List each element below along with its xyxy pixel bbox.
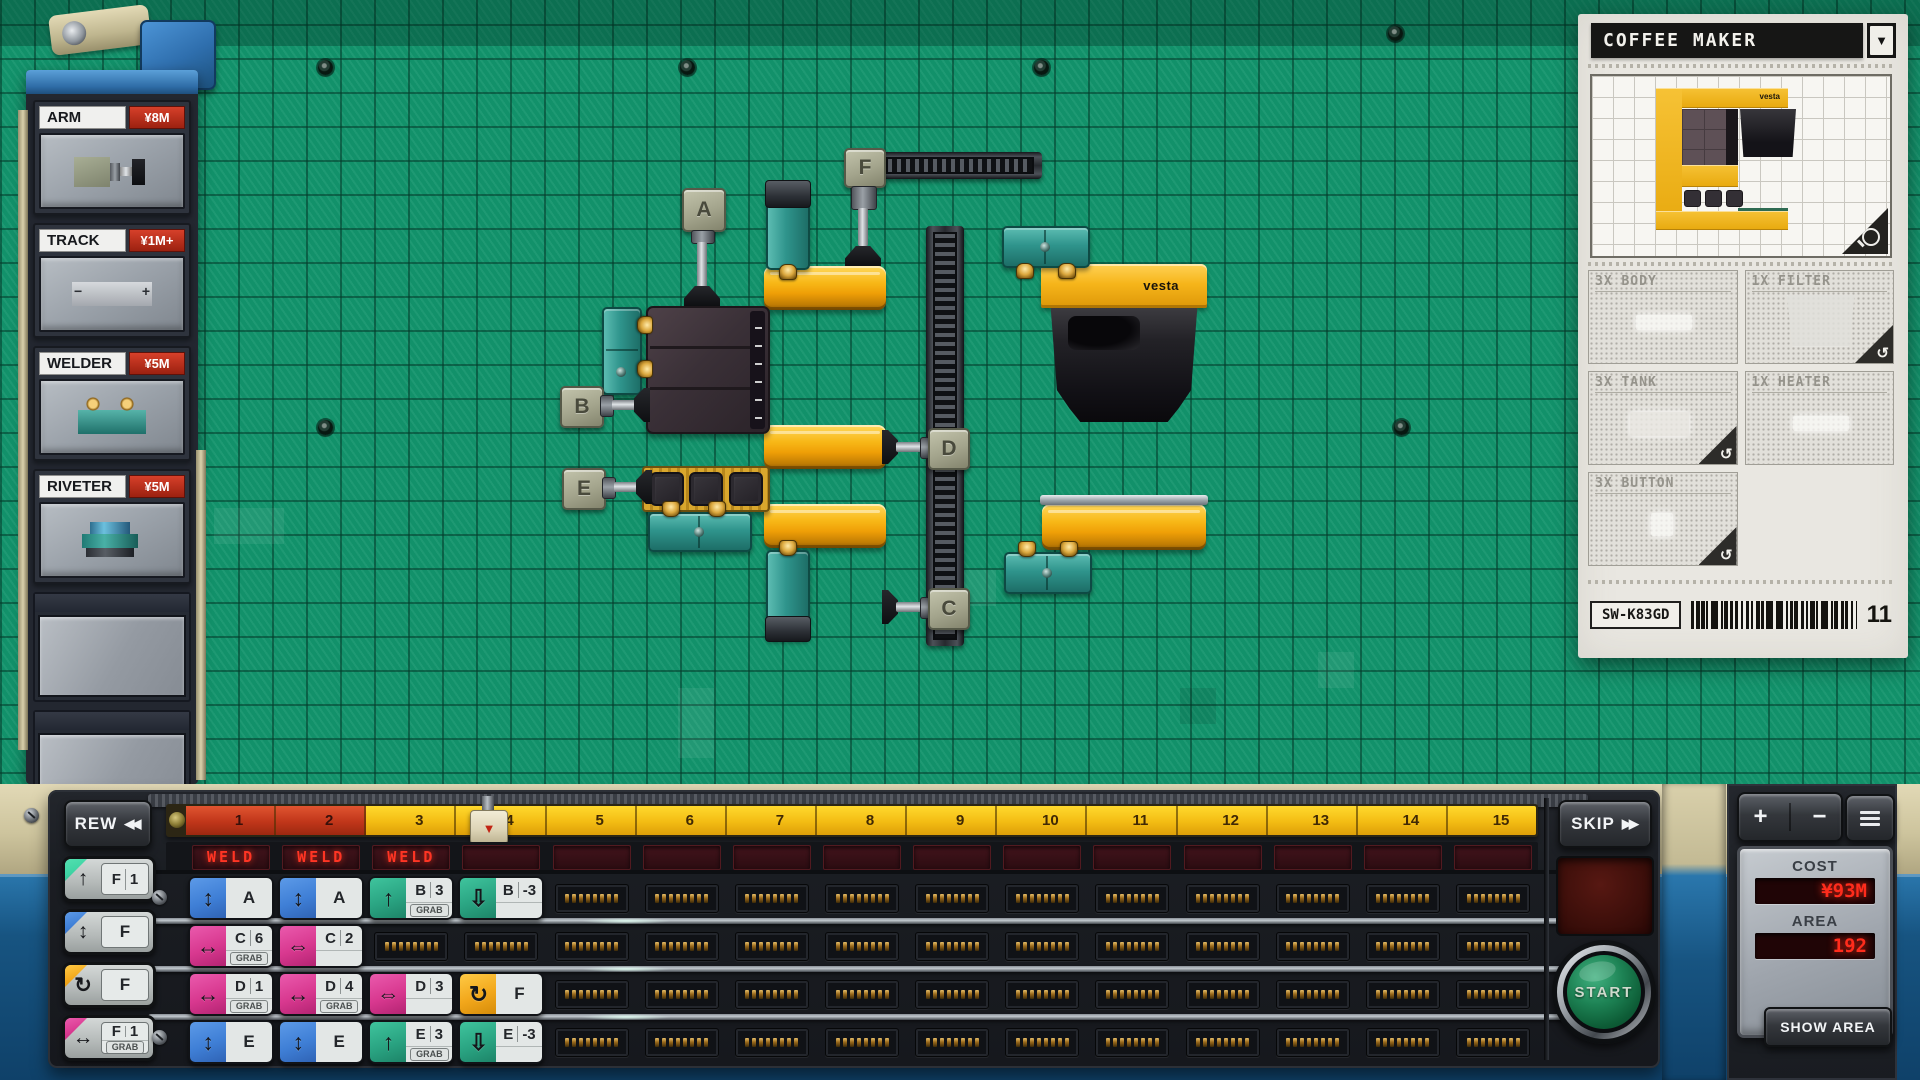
target-letter: D: [231, 978, 250, 995]
part-qty-label: 3X TANK: [1595, 375, 1731, 393]
palette-plate: F1GRAB: [101, 1022, 149, 1054]
chip-plate: E: [226, 1022, 272, 1062]
minus-icon: −: [1798, 807, 1841, 827]
arm-label-tile: D: [928, 428, 970, 470]
program-cell: [1358, 972, 1448, 1016]
empty-socket[interactable]: [1095, 980, 1169, 1009]
timeline-number: 7: [776, 812, 784, 829]
menu-icon: [1860, 817, 1880, 820]
empty-socket[interactable]: [1456, 980, 1530, 1009]
program-grid: ↕A↕A↑B3GRAB⇩B-3↔C6GRAB⇔C2↔D1GRAB↔D4GRAB⇔…: [166, 876, 1538, 1068]
chip-plate: D1GRAB: [226, 974, 272, 1014]
target-value: 1: [126, 1023, 142, 1040]
barcode-row: SW-K83GD 11: [1590, 598, 1892, 632]
part-image: [39, 379, 185, 455]
timeline-segment-7[interactable]: 7: [727, 806, 817, 835]
empty-socket[interactable]: [1456, 884, 1530, 913]
skip-button[interactable]: SKIP ▶▶: [1558, 800, 1652, 848]
chip-plate: C6GRAB: [226, 926, 272, 966]
program-row-4: ↕E↕E↑E3GRAB⇩E-3: [166, 1020, 1538, 1064]
rotate-icon: ↻: [65, 973, 101, 998]
target-letter: F: [496, 974, 542, 1014]
instruction-chip-E[interactable]: ↑E3GRAB: [368, 1020, 454, 1064]
target-letter: F: [108, 1023, 125, 1040]
program-cell: [1448, 876, 1538, 920]
program-cell: ↕A: [276, 876, 366, 920]
arm-a[interactable]: A: [682, 188, 722, 312]
plus-glyph: +: [142, 283, 150, 299]
empty-socket[interactable]: [1366, 1028, 1440, 1057]
program-cell: ↔C6GRAB: [186, 924, 276, 968]
updown-icon: ↕: [280, 1022, 316, 1062]
timeline-segment-12[interactable]: 12: [1178, 806, 1268, 835]
program-cell: [727, 876, 817, 920]
start-button[interactable]: START: [1552, 940, 1656, 1044]
rotate-badge: ↺: [1699, 527, 1737, 565]
part-cell: 3X BUTTON↺: [1588, 472, 1738, 566]
target-value: 1: [251, 978, 267, 995]
timeline-number: 11: [1133, 812, 1149, 829]
arm-label-tile: C: [928, 588, 970, 630]
arm-label-tile: A: [682, 188, 726, 232]
program-cell: [366, 924, 456, 968]
suction-cup-icon: [634, 388, 650, 422]
empty-socket[interactable]: [1186, 980, 1260, 1009]
empty-socket[interactable]: [1095, 884, 1169, 913]
empty-socket[interactable]: [735, 932, 809, 961]
timeline-number: 3: [415, 812, 423, 829]
instruction-chip-E[interactable]: ⇩E-3: [458, 1020, 544, 1064]
welder[interactable]: [602, 307, 642, 395]
part-price: ¥5M: [129, 475, 185, 498]
empty-socket[interactable]: [555, 932, 629, 961]
empty-socket[interactable]: [645, 980, 719, 1009]
phase-display-5: [553, 845, 631, 870]
phase-display-12: [1184, 845, 1262, 870]
program-cell: [907, 1020, 997, 1064]
target-value: -3: [519, 882, 540, 899]
instruction-chip-D[interactable]: ↔D4GRAB: [278, 972, 364, 1016]
empty-socket[interactable]: [1095, 932, 1169, 961]
rotate-badge: ↺: [1855, 325, 1893, 363]
welder[interactable]: [766, 550, 810, 640]
arm-c[interactable]: C: [882, 588, 966, 628]
empty-socket[interactable]: [1276, 932, 1350, 961]
timeline-segment-10[interactable]: 10: [997, 806, 1087, 835]
phase-display-2: WELD: [282, 845, 360, 870]
target-letter: E: [316, 1022, 362, 1062]
empty-socket[interactable]: [825, 980, 899, 1009]
board-peg: [680, 60, 695, 75]
instruction-chip-C[interactable]: ⇔C2: [278, 924, 364, 968]
arm-e[interactable]: E: [562, 468, 654, 508]
suction-cup-icon: [684, 286, 720, 306]
target-value: 3: [431, 882, 447, 899]
phase-display-4: [462, 845, 540, 870]
empty-socket[interactable]: [825, 884, 899, 913]
suction-cup-icon: [636, 470, 652, 504]
program-cell: [727, 972, 817, 1016]
instruction-chip-B[interactable]: ⇩B-3: [458, 876, 544, 920]
timeline-segment-14[interactable]: 14: [1358, 806, 1448, 835]
empty-socket[interactable]: [1005, 1028, 1079, 1057]
plus-icon: +: [1739, 807, 1782, 827]
part-image: −+: [39, 256, 185, 332]
sidebar-card-riveter[interactable]: RIVETER¥5M: [33, 469, 191, 584]
timeline-segment-2[interactable]: 2: [276, 806, 366, 835]
empty-socket[interactable]: [915, 884, 989, 913]
timeline-ruler[interactable]: 123456789101112131415 ▼: [166, 804, 1538, 837]
program-cell: [1178, 924, 1268, 968]
empty-socket[interactable]: [1005, 980, 1079, 1009]
arm-f[interactable]: F: [844, 148, 884, 268]
product-title-bar: COFFEE MAKER: [1591, 23, 1863, 58]
chip-plate: E-3: [496, 1022, 542, 1062]
chip-plate: C2: [316, 926, 362, 966]
board-peg: [1388, 26, 1403, 41]
instruction-chip-D[interactable]: ⇔D3: [368, 972, 454, 1016]
sidebar-card-arm[interactable]: ARM¥8M: [33, 100, 191, 215]
arm-label-tile: F: [844, 148, 886, 188]
target-letter: E: [412, 1026, 430, 1043]
program-cell: [1178, 972, 1268, 1016]
target-letter: B: [411, 882, 430, 899]
part-cell: 3X BODY: [1588, 270, 1738, 364]
chip-plate: F: [496, 974, 542, 1014]
program-cell: [817, 1020, 907, 1064]
program-cell: ⇩B-3: [456, 876, 546, 920]
program-cell: [1448, 924, 1538, 968]
chip-plate: D4GRAB: [316, 974, 362, 1014]
empty-socket[interactable]: [1456, 932, 1530, 961]
instruction-chip-F[interactable]: ↻F: [458, 972, 544, 1016]
body-part[interactable]: [646, 306, 770, 434]
part-cell: 3X TANK↺: [1588, 371, 1738, 465]
updown-icon: ↕: [65, 920, 101, 944]
target-value: -3: [518, 1026, 539, 1043]
part-silhouette: [1787, 295, 1855, 347]
up-icon: ↑: [370, 878, 406, 918]
card-label-row: TRACK¥1M+: [39, 229, 185, 252]
phase-display-1: WELD: [192, 845, 270, 870]
palette-plate: F: [101, 969, 149, 1001]
product-title: COFFEE MAKER: [1603, 30, 1757, 51]
chip-plate: A: [226, 878, 272, 918]
minus-glyph: −: [74, 283, 82, 299]
timeline-number: 14: [1403, 812, 1420, 829]
program-row-1: ↕A↕A↑B3GRAB⇩B-3: [166, 876, 1538, 920]
program-cell: ↕E: [276, 1020, 366, 1064]
part-price: ¥8M: [129, 106, 185, 129]
program-cell: [907, 972, 997, 1016]
program-cell: ⇔D3: [366, 972, 456, 1016]
program-cell: [997, 1020, 1087, 1064]
area-display: 192: [1755, 933, 1875, 959]
instruction-palette: ↑F1↕F↻F↔F1GRAB: [62, 856, 156, 1061]
target-letter: A: [226, 878, 272, 918]
empty-socket[interactable]: [1276, 884, 1350, 913]
riveter-thumbnail-icon: [72, 520, 152, 560]
program-cell: [907, 924, 997, 968]
product-panel: COFFEE MAKER ▼ vesta 3X BODY1X FILTER↺3X…: [1578, 14, 1908, 658]
welder[interactable]: [1002, 226, 1090, 268]
program-cell: [1358, 1020, 1448, 1064]
conveyor[interactable]: [764, 425, 886, 469]
timeline-segment-5[interactable]: 5: [547, 806, 637, 835]
empty-socket[interactable]: [915, 980, 989, 1009]
chip-plate: A: [316, 878, 362, 918]
instruction-chip-E[interactable]: ↕E: [278, 1020, 364, 1064]
welder[interactable]: [766, 182, 810, 270]
program-cell: [547, 972, 637, 1016]
program-cell: ⇩E-3: [456, 1020, 546, 1064]
timeline-segment-8[interactable]: 8: [817, 806, 907, 835]
timeline-segment-1[interactable]: 1: [186, 806, 276, 835]
palette-button-lr[interactable]: ↔F1GRAB: [62, 1015, 156, 1061]
empty-socket[interactable]: [1186, 932, 1260, 961]
carafe: [1046, 308, 1202, 422]
welder[interactable]: [648, 512, 752, 552]
timeline-segment-6[interactable]: 6: [637, 806, 727, 835]
program-cell: [727, 924, 817, 968]
part-cell: 1X HEATER: [1745, 371, 1895, 465]
target-letter: D: [321, 978, 340, 995]
program-cell: [637, 1020, 727, 1064]
part-silhouette: [1651, 513, 1673, 535]
control-panel: REW ◀◀ 123456789101112131415 ▼ SKIP ▶▶ W…: [0, 784, 1920, 1080]
part-silhouette: [1636, 315, 1692, 330]
program-cell: [1268, 1020, 1358, 1064]
card-label-row: ARM¥8M: [39, 106, 185, 129]
product-counter-display: [1556, 856, 1654, 936]
program-cell: [997, 924, 1087, 968]
timeline-number: 1: [235, 812, 243, 829]
fast-forward-icon: ▶▶: [1622, 816, 1639, 832]
instruction-chip-C[interactable]: ↔C6GRAB: [188, 924, 274, 968]
barcode: [1691, 601, 1856, 629]
timeline-number: 9: [956, 812, 964, 829]
timeline-segment-13[interactable]: 13: [1268, 806, 1358, 835]
timeline-number: 15: [1493, 812, 1510, 829]
menu-button[interactable]: [1845, 794, 1895, 842]
rotate-icon: ↻: [460, 974, 496, 1014]
phase-display-15: [1454, 845, 1532, 870]
housing-pillar: [1662, 784, 1726, 1080]
empty-socket[interactable]: [735, 884, 809, 913]
rotate-icon: ↺: [1720, 546, 1737, 565]
welder[interactable]: [1004, 552, 1092, 594]
empty-socket[interactable]: [1186, 1028, 1260, 1057]
timeline-segment-15[interactable]: 15: [1448, 806, 1536, 835]
program-cell: [817, 972, 907, 1016]
empty-socket[interactable]: [1276, 1028, 1350, 1057]
filter-part[interactable]: vesta: [1041, 264, 1207, 422]
program-cell: [1268, 972, 1358, 1016]
program-row-2: ↔C6GRAB⇔C2: [166, 924, 1538, 968]
empty-socket[interactable]: [645, 1028, 719, 1057]
program-cell: [547, 1020, 637, 1064]
empty-socket[interactable]: [374, 932, 448, 961]
parts-grid: 3X BODY1X FILTER↺3X TANK↺1X HEATER3X BUT…: [1588, 270, 1894, 566]
playhead-marker-icon: ▼: [483, 821, 496, 836]
timeline-segment-3[interactable]: 3: [366, 806, 456, 835]
timeline-number: 13: [1312, 812, 1329, 829]
empty-socket[interactable]: [645, 884, 719, 913]
part-name: WELDER: [39, 352, 126, 375]
rotate-icon: ↺: [1876, 344, 1893, 363]
program-cell: [1268, 924, 1358, 968]
arm-d[interactable]: D: [882, 428, 966, 468]
zoom-corner-button[interactable]: [1842, 208, 1888, 254]
phase-display-3: WELD: [372, 845, 450, 870]
target-letter: D: [411, 978, 430, 995]
phase-display-14: [1364, 845, 1442, 870]
instruction-chip-A[interactable]: ↕A: [188, 876, 274, 920]
rotate-icon: ↺: [1720, 445, 1737, 464]
instruction-chip-E[interactable]: ↕E: [188, 1020, 274, 1064]
empty-socket[interactable]: [1366, 932, 1440, 961]
target-letter: F: [102, 917, 148, 947]
sku-label: SW-K83GD: [1590, 601, 1681, 629]
palette-button-updown[interactable]: ↕F: [62, 909, 156, 955]
sidebar-card-welder[interactable]: WELDER¥5M: [33, 346, 191, 461]
area-label: AREA: [1792, 913, 1839, 930]
empty-socket[interactable]: [1366, 980, 1440, 1009]
grab-label: GRAB: [410, 1048, 449, 1061]
target-letter: F: [108, 871, 125, 888]
program-cell: [817, 924, 907, 968]
empty-socket[interactable]: [1276, 980, 1350, 1009]
rewind-button[interactable]: REW ◀◀: [64, 800, 152, 848]
part-cell: 1X FILTER↺: [1745, 270, 1895, 364]
empty-socket[interactable]: [915, 932, 989, 961]
rotate-badge: ↺: [1699, 426, 1737, 464]
program-cell: [907, 876, 997, 920]
grab-label: GRAB: [106, 1041, 145, 1054]
arm-b[interactable]: B: [560, 386, 652, 426]
target-letter: C: [231, 930, 250, 947]
grab-label: GRAB: [230, 1000, 269, 1013]
up-icon: ↑: [370, 1022, 406, 1062]
track-horizontal-f[interactable]: [880, 152, 1042, 179]
empty-socket[interactable]: [735, 980, 809, 1009]
timeline-number: 2: [325, 812, 333, 829]
empty-socket[interactable]: [555, 884, 629, 913]
phase-display-6: [643, 845, 721, 870]
product-dropdown-button[interactable]: ▼: [1867, 23, 1896, 58]
lr-outline-icon: ⇔: [370, 974, 406, 1014]
program-cell: [637, 876, 727, 920]
empty-socket[interactable]: [735, 1028, 809, 1057]
sidebar-empty-slot: [33, 592, 191, 702]
down-outline-icon: ⇩: [460, 1022, 496, 1062]
phase-display-13: [1274, 845, 1352, 870]
empty-socket[interactable]: [464, 932, 538, 961]
phase-display-row: WELDWELDWELD: [166, 842, 1538, 872]
instruction-chip-D[interactable]: ↔D1GRAB: [188, 972, 274, 1016]
empty-socket[interactable]: [1456, 1028, 1530, 1057]
program-cell: [1087, 1020, 1177, 1064]
palette-button-up[interactable]: ↑F1: [62, 856, 156, 902]
empty-socket[interactable]: [825, 1028, 899, 1057]
lr-icon: ↔: [65, 1026, 101, 1050]
suction-cup-icon: [845, 246, 881, 266]
instruction-chip-A[interactable]: ↕A: [278, 876, 364, 920]
empty-socket[interactable]: [645, 932, 719, 961]
timeline-number: 5: [595, 812, 603, 829]
empty-socket[interactable]: [1005, 932, 1079, 961]
part-qty-label: 1X FILTER: [1752, 274, 1888, 292]
empty-socket[interactable]: [1186, 884, 1260, 913]
chip-plate: B-3: [496, 878, 542, 918]
palette-button-rotate[interactable]: ↻F: [62, 962, 156, 1008]
chip-plate: E: [316, 1022, 362, 1062]
lr-icon: ↔: [190, 974, 226, 1014]
factory-workspace: vesta A F: [0, 0, 1920, 1080]
part-qty-label: 1X HEATER: [1752, 375, 1888, 393]
target-letter: A: [316, 878, 362, 918]
program-cell: ↕A: [186, 876, 276, 920]
empty-socket[interactable]: [555, 980, 629, 1009]
program-cell: [547, 876, 637, 920]
card-label-row: WELDER¥5M: [39, 352, 185, 375]
part-qty-label: 3X BODY: [1595, 274, 1731, 292]
empty-socket[interactable]: [1005, 884, 1079, 913]
cost-area-panel: COST ¥93M AREA 192 SHOW AREA: [1737, 846, 1893, 1038]
grab-label: GRAB: [230, 952, 269, 965]
part-qty-label: 3X BUTTON: [1595, 476, 1731, 494]
program-cell: [1178, 1020, 1268, 1064]
component-shop: ARM¥8MTRACK¥1M+−+WELDER¥5MRIVETER¥5M: [26, 70, 198, 784]
target-letter: E: [226, 1022, 272, 1062]
zoom-rocker-button[interactable]: + −: [1737, 792, 1843, 842]
grab-label: GRAB: [410, 904, 449, 917]
program-cell: [1448, 972, 1538, 1016]
chip-plate: D3: [406, 974, 452, 1014]
target-letter: C: [321, 930, 340, 947]
empty-socket[interactable]: [825, 932, 899, 961]
product-preview: vesta: [1590, 74, 1892, 258]
palette-plate: F: [101, 916, 149, 948]
part-price: ¥5M: [129, 352, 185, 375]
program-cell: ⇔C2: [276, 924, 366, 968]
sidebar-card-track[interactable]: TRACK¥1M+−+: [33, 223, 191, 338]
timeline-segment-11[interactable]: 11: [1087, 806, 1177, 835]
empty-socket[interactable]: [555, 1028, 629, 1057]
part-name: ARM: [39, 106, 126, 129]
program-cell: [997, 876, 1087, 920]
lr-icon: ↔: [190, 926, 226, 966]
program-cell: [1358, 876, 1448, 920]
timeline-segment-9[interactable]: 9: [907, 806, 997, 835]
program-cell: [1448, 1020, 1538, 1064]
target-letter: F: [102, 970, 148, 1000]
empty-socket[interactable]: [1095, 1028, 1169, 1057]
program-cell: ↔D4GRAB: [276, 972, 366, 1016]
chevron-down-icon: ▼: [1870, 26, 1893, 55]
card-label-row: RIVETER¥5M: [39, 475, 185, 498]
instruction-chip-B[interactable]: ↑B3GRAB: [368, 876, 454, 920]
magnifier-icon: [1862, 228, 1880, 246]
chip-plate: B3GRAB: [406, 878, 452, 918]
show-area-button[interactable]: SHOW AREA: [1764, 1007, 1892, 1047]
target-value: 4: [341, 978, 357, 995]
part-price: ¥1M+: [129, 229, 185, 252]
part-silhouette: [1793, 416, 1849, 431]
empty-socket[interactable]: [1366, 884, 1440, 913]
empty-socket[interactable]: [915, 1028, 989, 1057]
target-value: 6: [251, 930, 267, 947]
